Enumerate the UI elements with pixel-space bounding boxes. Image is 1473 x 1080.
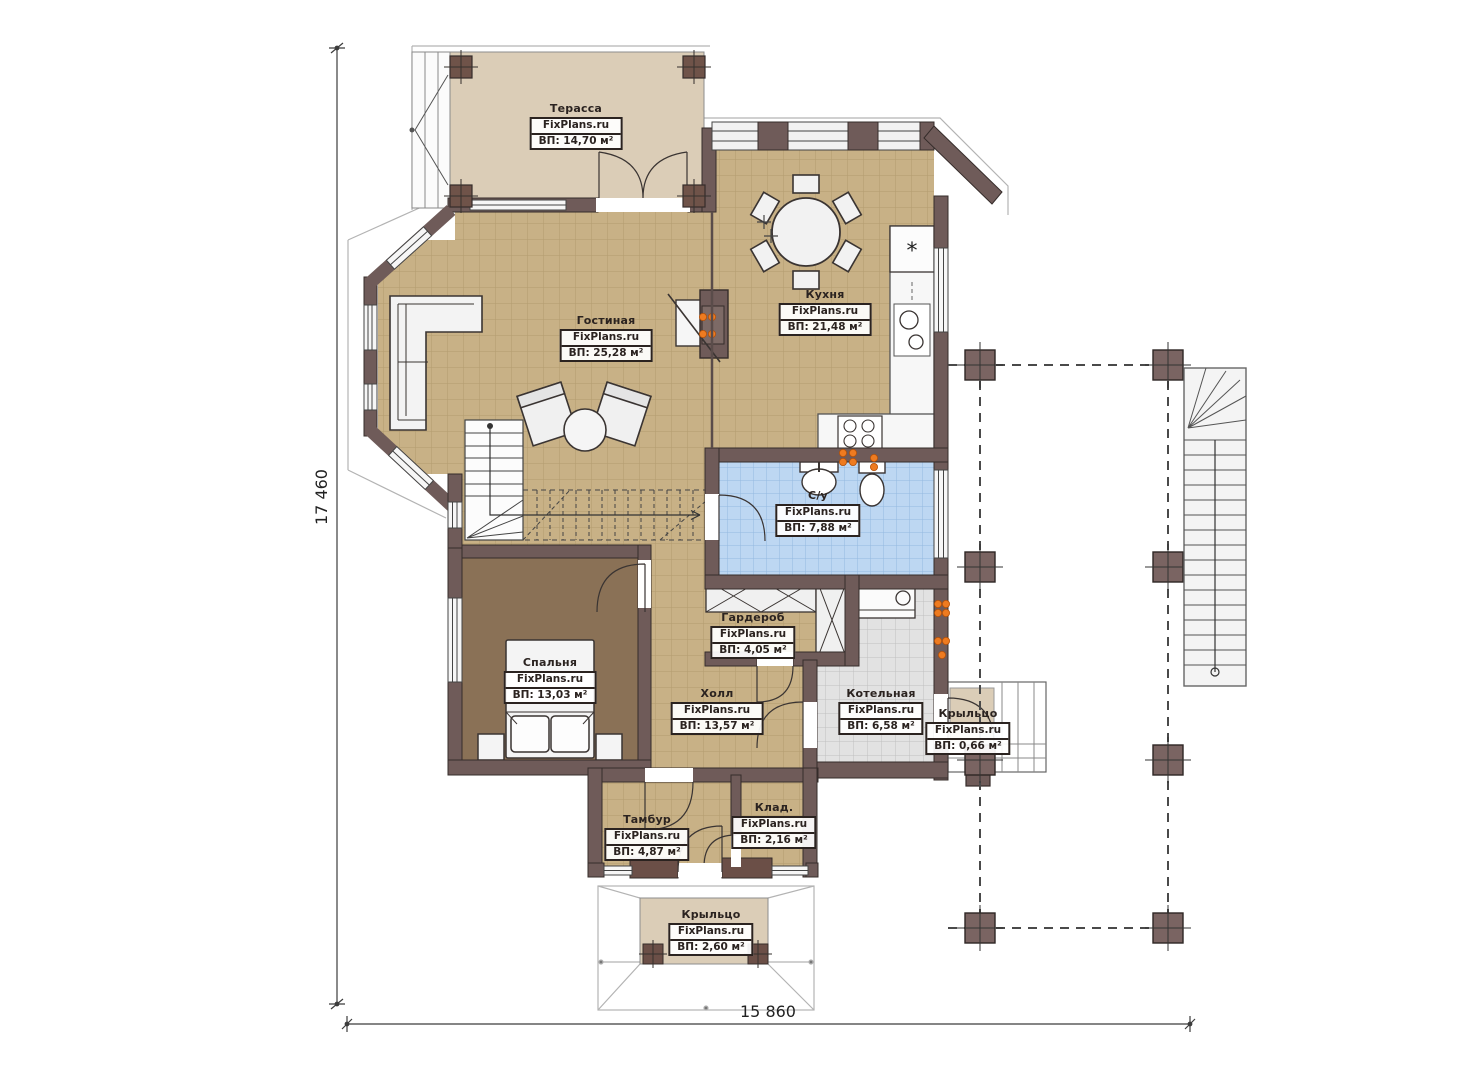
room-label-porch-right: Крыльцо FixPlans.ru ВП: 0,66 м²: [925, 708, 1010, 755]
room-label-vestibule: Тамбур FixPlans.ru ВП: 4,87 м²: [604, 814, 689, 861]
floor-plan-canvas: *: [0, 0, 1473, 1080]
coffee-table: [564, 409, 606, 451]
room-label-living: Гостиная FixPlans.ru ВП: 25,28 м²: [560, 315, 653, 362]
watermark: FixPlans.ru: [532, 119, 621, 135]
stove-icon: [838, 416, 882, 450]
watermark: FixPlans.ru: [562, 331, 651, 347]
watermark: FixPlans.ru: [840, 704, 921, 720]
room-label-terrace: Терасса FixPlans.ru ВП: 14,70 м²: [530, 103, 623, 150]
watermark: FixPlans.ru: [781, 305, 870, 321]
living-room-floor: [378, 212, 712, 548]
watermark: FixPlans.ru: [606, 830, 687, 846]
external-stairs: [1184, 368, 1246, 686]
room-label-storage: Клад. FixPlans.ru ВП: 2,16 м²: [731, 802, 816, 849]
room-label-hall: Холл FixPlans.ru ВП: 13,57 м²: [671, 688, 764, 735]
dimension-height-label: 17 460: [312, 469, 331, 525]
nightstand: [478, 734, 504, 760]
watermark: FixPlans.ru: [733, 818, 814, 834]
watermark: FixPlans.ru: [673, 704, 762, 720]
dimension-left: [329, 43, 345, 1009]
watermark: FixPlans.ru: [712, 628, 793, 644]
room-label-boiler: Котельная FixPlans.ru ВП: 6,58 м²: [838, 688, 923, 735]
watermark: FixPlans.ru: [506, 673, 595, 689]
room-label-wardrobe: Гардероб FixPlans.ru ВП: 4,05 м²: [710, 612, 795, 659]
nightstand: [596, 734, 622, 760]
room-label-bedroom: Спальня FixPlans.ru ВП: 13,03 м²: [504, 657, 597, 704]
room-label-bathroom: С/у FixPlans.ru ВП: 7,88 м²: [775, 490, 860, 537]
watermark: FixPlans.ru: [927, 724, 1008, 740]
dimension-width-label: 15 860: [740, 1002, 796, 1021]
watermark: FixPlans.ru: [670, 925, 751, 941]
pergola-dashed-outline: [948, 365, 1168, 928]
terrace-steps: [410, 52, 451, 208]
fridge-icon: *: [907, 239, 918, 264]
pergola-pillars: [957, 342, 1191, 951]
watermark: FixPlans.ru: [777, 506, 858, 522]
room-label-kitchen: Кухня FixPlans.ru ВП: 21,48 м²: [779, 289, 872, 336]
room-label-porch-bottom: Крыльцо FixPlans.ru ВП: 2,60 м²: [668, 909, 753, 956]
